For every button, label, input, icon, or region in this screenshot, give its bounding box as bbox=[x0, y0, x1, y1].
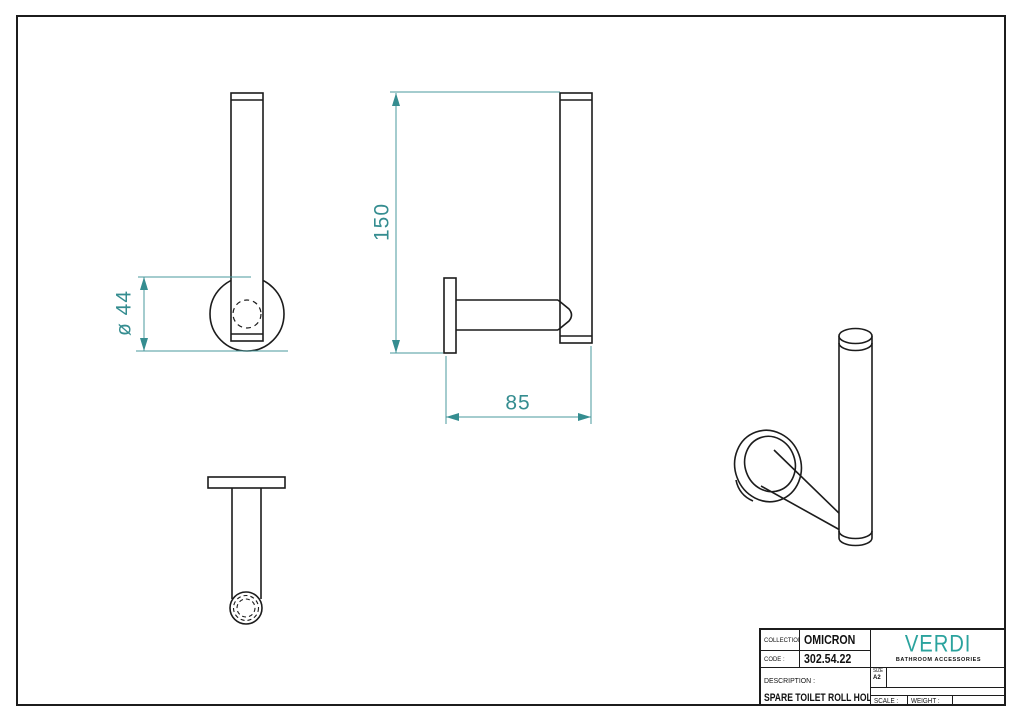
arrowhead-right bbox=[578, 413, 591, 421]
arrowhead-down bbox=[140, 338, 148, 351]
size-cell: SIZE A2 bbox=[871, 668, 887, 688]
front-view bbox=[210, 93, 284, 351]
brand-tagline: BATHROOM ACCESSORIES bbox=[871, 657, 1006, 663]
size-empty-cell bbox=[887, 668, 1006, 688]
size-value: A2 bbox=[873, 675, 886, 682]
arrowhead-left bbox=[446, 413, 459, 421]
dimension-diameter-44 bbox=[136, 277, 288, 351]
code-label-cell: CODE : bbox=[761, 651, 800, 668]
arrowhead-down bbox=[392, 340, 400, 353]
arrowhead-up bbox=[140, 277, 148, 290]
scale-label: SCALE : bbox=[874, 698, 898, 705]
dimension-diameter-label: ø 44 bbox=[114, 290, 135, 336]
description-label: DESCRIPTION : bbox=[764, 676, 815, 685]
arrowhead-up bbox=[392, 93, 400, 106]
code-value-cell: 302.54.22 bbox=[800, 651, 871, 668]
bottom-view bbox=[208, 477, 285, 624]
flange-outer-ellipse bbox=[725, 421, 812, 511]
wall-plate-edge bbox=[208, 477, 285, 488]
weight-cell: WEIGHT : bbox=[908, 696, 953, 706]
arm-bottom-line bbox=[761, 486, 840, 530]
tube-body bbox=[231, 93, 263, 341]
code-label: CODE : bbox=[764, 656, 785, 663]
wall-plate-profile bbox=[444, 278, 456, 353]
collection-label-cell: COLLECTION : bbox=[761, 630, 800, 651]
size-label: SIZE bbox=[873, 669, 885, 675]
side-view bbox=[444, 93, 592, 353]
code-value: 302.54.22 bbox=[804, 652, 851, 666]
collection-value-cell: OMICRON bbox=[800, 630, 871, 651]
drawing-sheet: 150 ø 44 85 COLLECTION : OMICRON CODE : … bbox=[0, 0, 1024, 724]
dimension-height-label: 150 bbox=[372, 203, 393, 241]
cylinder-top-cap bbox=[839, 329, 872, 344]
empty-row-cell bbox=[871, 688, 1006, 696]
tube-end-circle bbox=[230, 592, 262, 624]
brand-cell: VERDI BATHROOM ACCESSORIES bbox=[871, 630, 1006, 668]
description-cell: DESCRIPTION : SPARE TOILET ROLL HOLDER bbox=[761, 668, 871, 706]
collection-value: OMICRON bbox=[804, 633, 855, 647]
weight-label: WEIGHT : bbox=[911, 698, 940, 705]
drawing-canvas bbox=[0, 0, 1024, 724]
dimension-length-label: 85 bbox=[505, 393, 530, 414]
perspective-view bbox=[725, 329, 872, 546]
description-value: SPARE TOILET ROLL HOLDER bbox=[764, 692, 871, 704]
scale-cell: SCALE : bbox=[871, 696, 908, 706]
collection-label: COLLECTION : bbox=[764, 637, 800, 644]
weight-empty-cell bbox=[953, 696, 1006, 706]
dimension-height-150 bbox=[390, 92, 560, 353]
cylinder-mask bbox=[839, 336, 872, 538]
brand-logo: VERDI bbox=[905, 632, 971, 656]
title-block: COLLECTION : OMICRON CODE : 302.54.22 DE… bbox=[759, 628, 1004, 704]
